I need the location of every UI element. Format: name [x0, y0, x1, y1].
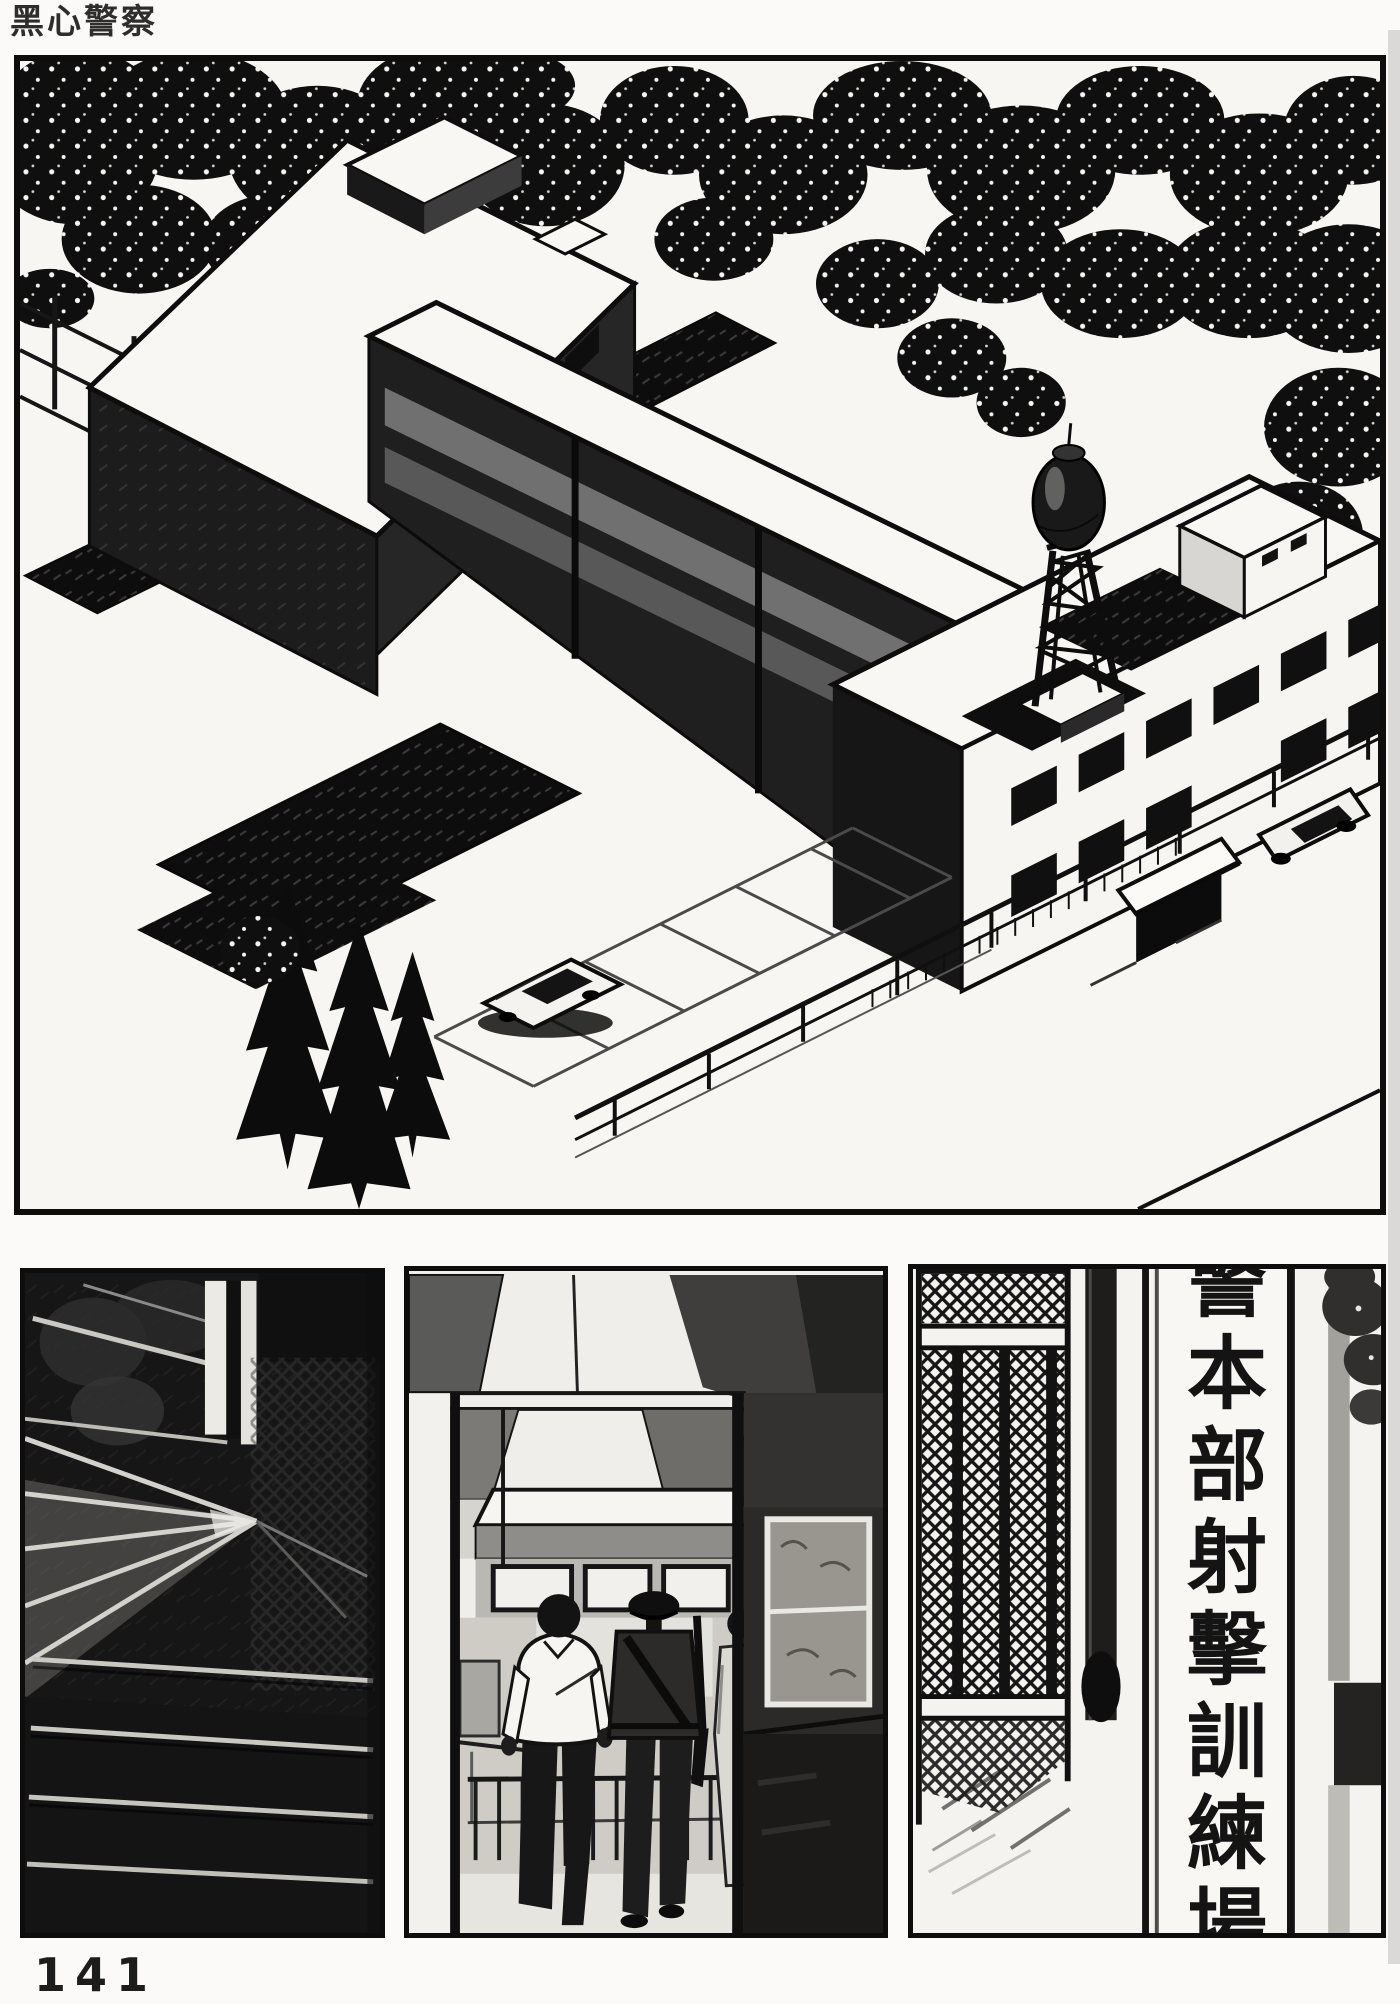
right-wall [744, 1393, 883, 1933]
shadow-lattice [251, 1358, 375, 1691]
inner-canopy [476, 1490, 756, 1525]
panel-aerial-view [14, 55, 1386, 1215]
staircase-art [25, 1273, 380, 1933]
trash-bin [460, 1661, 499, 1736]
hallway-art [409, 1271, 883, 1933]
panel-staircase [20, 1268, 385, 1938]
manga-page: 黑心警察 [0, 0, 1400, 2004]
scan-edge-strip [1388, 30, 1400, 1964]
light-slit [205, 1281, 226, 1435]
grey-post [1328, 1283, 1350, 1681]
left-jamb [409, 1393, 450, 1933]
sign-vertical-text: 警本部射擊訓練場 [1181, 1264, 1261, 1938]
pole [1081, 1269, 1120, 1722]
panel-sign: 警本部射擊訓練場 [908, 1264, 1386, 1938]
page-title: 黑心警察 [10, 2, 158, 43]
panel-hallway [404, 1266, 888, 1938]
sign-art [913, 1269, 1381, 1933]
page-number: 141 [34, 1948, 157, 2002]
aerial-art [20, 61, 1380, 1209]
lattice-fence [919, 1271, 1070, 1850]
dark-block [1334, 1683, 1381, 1785]
tower-drum [1033, 455, 1104, 550]
